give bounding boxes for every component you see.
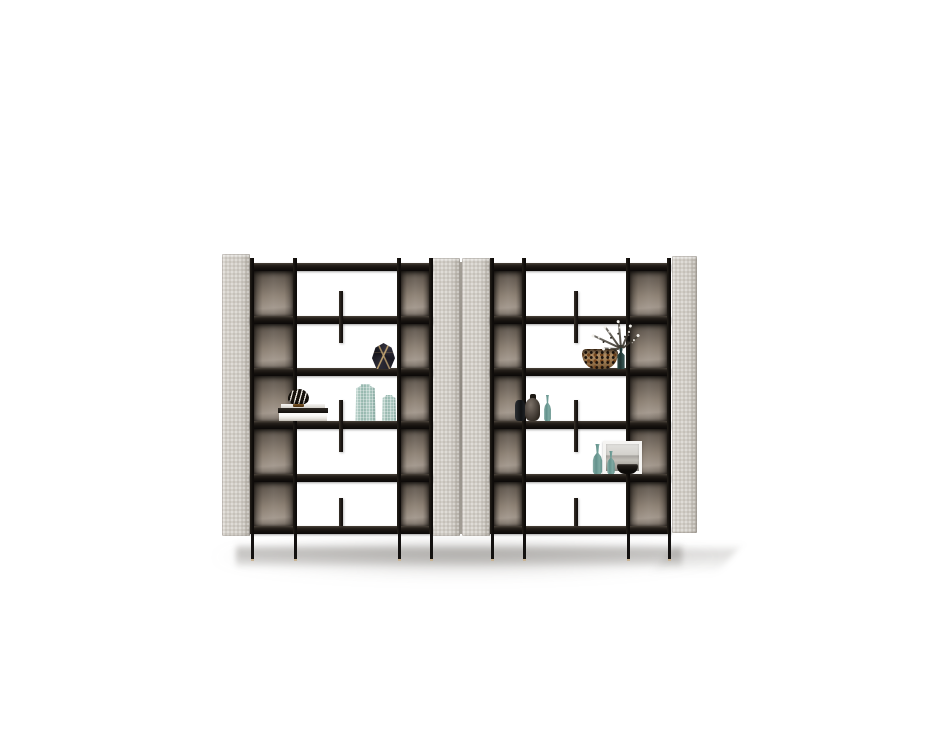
shelf-divider-tab: [574, 291, 578, 343]
shelf: [490, 263, 671, 271]
back-panel-cell: [630, 482, 667, 526]
shelf: [490, 474, 671, 482]
leopard-bowl: [582, 349, 618, 369]
frame-post: [626, 258, 630, 534]
back-panel-cell: [494, 482, 522, 526]
teal-bottle-vase: [542, 395, 553, 421]
side-panel-outer-right: [672, 256, 697, 533]
shelf: [490, 421, 671, 429]
leg: [491, 534, 494, 561]
back-panel-cell: [630, 324, 667, 368]
shelf-divider-tab: [574, 498, 578, 526]
frame-post: [490, 258, 494, 534]
frame-post: [667, 258, 671, 534]
back-panel-cell: [494, 429, 522, 474]
leg: [627, 534, 630, 561]
leg: [523, 534, 526, 561]
side-panel-inner-left: [462, 258, 490, 536]
back-panel-cell: [494, 324, 522, 368]
dark-vase-large: [525, 394, 540, 421]
shelf: [490, 316, 671, 324]
shelf-divider-tab: [574, 400, 578, 452]
leg: [668, 534, 671, 561]
back-panel-cell: [494, 271, 522, 316]
product-stage: [0, 0, 950, 733]
bookshelf-right: [0, 0, 950, 733]
back-panel-cell: [630, 376, 667, 421]
shelf: [490, 368, 671, 376]
dark-vase-small: [515, 400, 525, 421]
shelf: [490, 526, 671, 534]
back-panel-cell: [630, 271, 667, 316]
